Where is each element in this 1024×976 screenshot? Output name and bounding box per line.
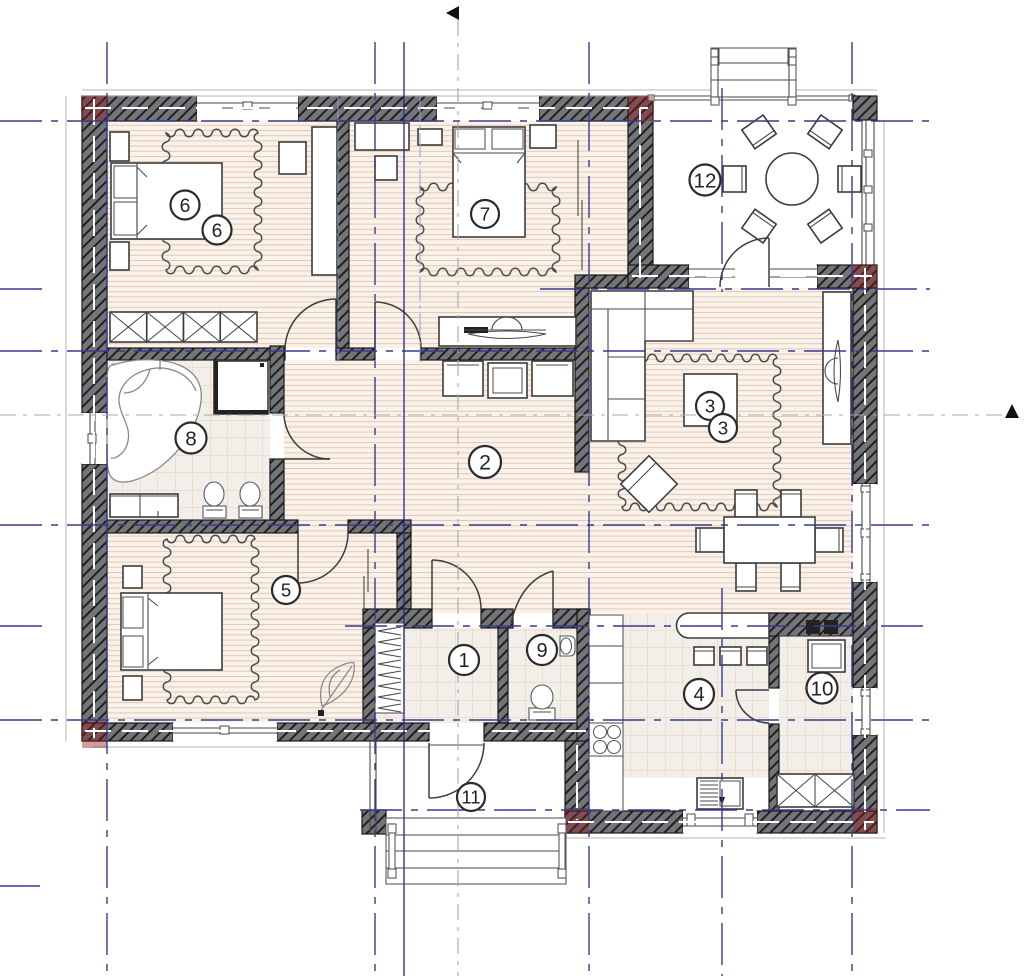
svg-text:5: 5 bbox=[281, 580, 291, 601]
svg-text:3: 3 bbox=[705, 396, 715, 417]
svg-text:4: 4 bbox=[693, 684, 704, 706]
svg-text:8: 8 bbox=[185, 427, 196, 450]
svg-text:9: 9 bbox=[536, 640, 547, 662]
svg-text:2: 2 bbox=[479, 451, 491, 475]
svg-text:6: 6 bbox=[212, 221, 223, 242]
svg-text:11: 11 bbox=[461, 787, 480, 808]
svg-text:3: 3 bbox=[718, 418, 728, 439]
svg-text:12: 12 bbox=[694, 169, 717, 192]
svg-text:1: 1 bbox=[458, 650, 469, 672]
svg-text:7: 7 bbox=[480, 204, 490, 225]
svg-text:6: 6 bbox=[180, 196, 191, 217]
svg-text:10: 10 bbox=[811, 677, 834, 700]
